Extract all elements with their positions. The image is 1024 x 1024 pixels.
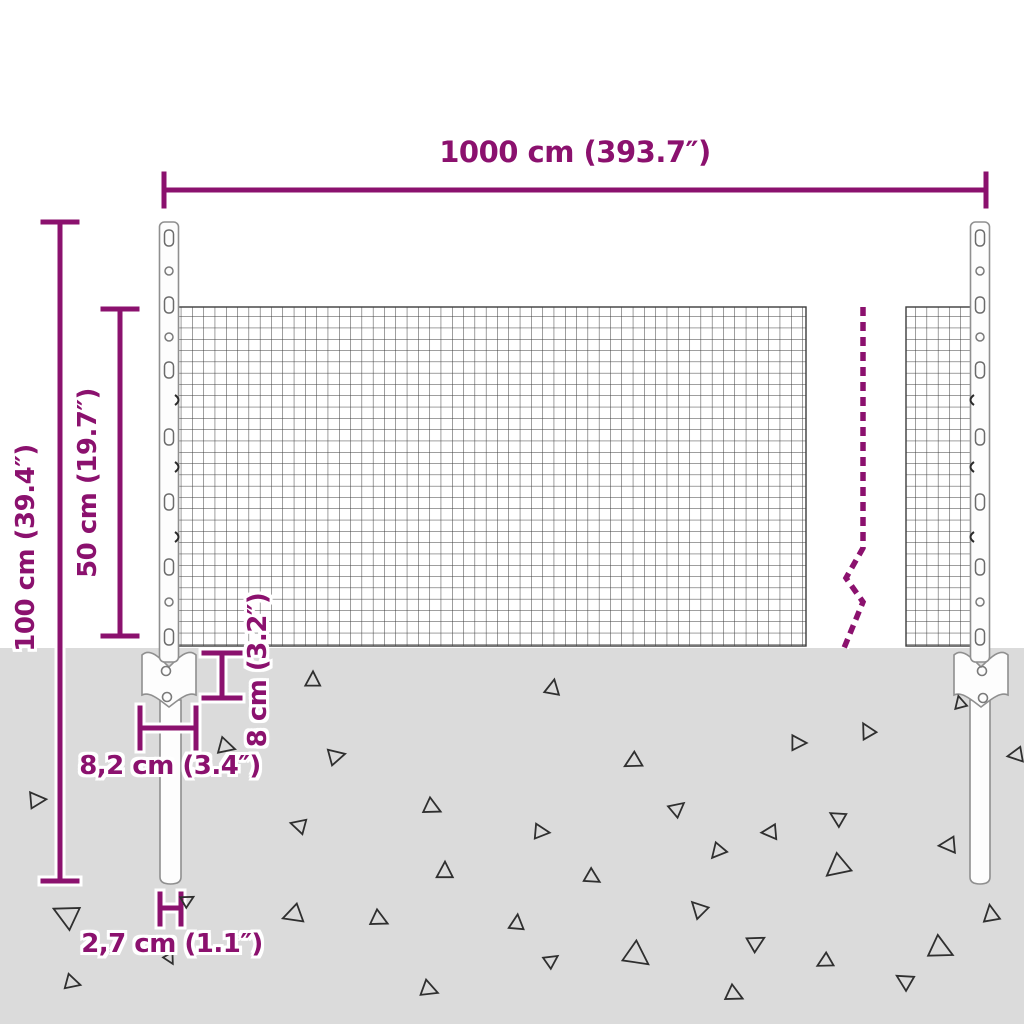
dim-label-total-width: 1000 cm (393.7″) (439, 135, 711, 169)
dimension-diagram: 1000 cm (393.7″) 100 cm (39.4″) 50 cm (1… (0, 0, 1024, 1024)
dim-label-anchor-depth: 8 cm (3.2″) (243, 593, 273, 748)
ground-area (0, 648, 1024, 1024)
dim-label-total-height: 100 cm (39.4″) (11, 444, 41, 651)
left-post (160, 222, 179, 662)
dim-label-anchor-plate-width: 8,2 cm (3.4″) (79, 751, 261, 781)
dim-label-mesh-height: 50 cm (19.7″) (73, 388, 103, 578)
break-line (844, 307, 863, 648)
right-post (971, 222, 990, 662)
dim-line-total-width (164, 174, 986, 206)
right-post-underground (970, 700, 990, 884)
dim-label-post-thickness: 2,7 cm (1.1″) (81, 929, 263, 959)
dim-line-mesh-height (103, 309, 137, 636)
